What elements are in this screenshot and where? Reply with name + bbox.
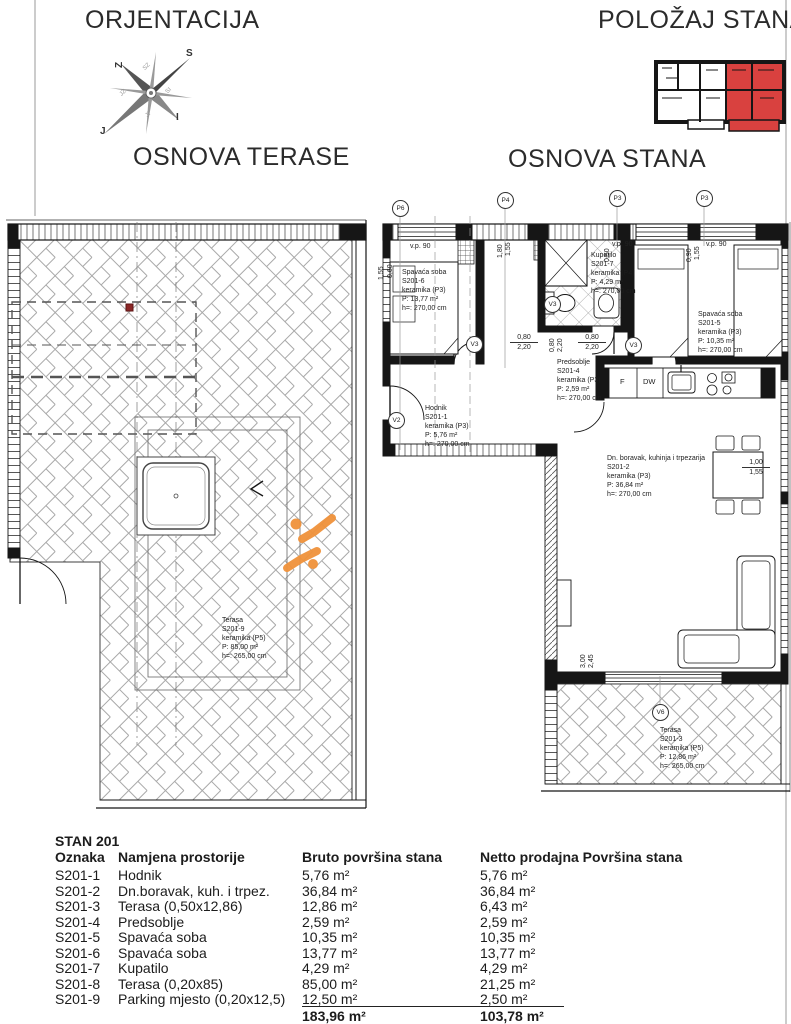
cell-bruto: 2,59 m² [302, 914, 349, 930]
cell-name: Hodnik [118, 867, 162, 883]
window-top-2 [636, 224, 688, 240]
room-id: S201-6 [402, 277, 447, 286]
cell-bruto: 85,00 m² [302, 976, 357, 992]
room-finish: keramika (P5) [222, 634, 267, 643]
room-label-s201-2: Dn. boravak, kuhinja i trpezarija S201-2… [607, 454, 705, 499]
room-finish: keramika (P3) [425, 422, 470, 431]
window-top-1 [398, 224, 456, 240]
position-miniplan [656, 62, 784, 131]
table-row: S201-9 Parking mjesto (0,20x12,5) 12,50 … [55, 991, 775, 1007]
terrace-plan [6, 220, 366, 808]
table-sum-line [302, 1006, 564, 1007]
room-finish: keramika (P3) [698, 328, 743, 337]
cell-netto: 21,25 m² [480, 976, 535, 992]
cell-id: S201-7 [55, 960, 100, 976]
room-finish: keramika (P3) [557, 376, 602, 385]
room-area: P: 13,77 m² [402, 295, 447, 304]
red-marker-square [126, 304, 133, 311]
skylight [137, 457, 215, 535]
room-id: S201-2 [607, 463, 705, 472]
room-height: h=: 270,00 cm [607, 490, 705, 499]
dishwasher-label: DW [643, 377, 656, 386]
cell-netto: 36,84 m² [480, 883, 535, 899]
room-area: P: 2,59 m² [557, 385, 602, 394]
room-finish: keramika (P4) [591, 269, 636, 278]
table-total-row: 183,96 m² 103,78 m² [55, 1008, 775, 1024]
room-height: h=: 265,00 cm [660, 762, 705, 771]
cell-bruto: 12,86 m² [302, 898, 357, 914]
cell-id: S201-3 [55, 898, 100, 914]
floor-plan-sheet: ORJENTACIJA POLOŽAJ STANA OSNOVA TERASE … [0, 0, 791, 1024]
sliding-door [605, 672, 722, 684]
room-area: P: 12,86 m² [660, 753, 705, 762]
window-marker-v6: V6 [652, 704, 669, 721]
orientation-title: ORJENTACIJA [85, 6, 260, 35]
column-header: Oznaka [55, 849, 105, 865]
dimension-fraction: 1,00 1,55 [742, 458, 770, 477]
dimension-label: v.p. 90 [612, 241, 633, 248]
room-id: S201-4 [557, 367, 602, 376]
table-title: STAN 201 [55, 833, 119, 849]
room-height: h=: 270,00 cm [402, 304, 447, 313]
cell-id: S201-4 [55, 914, 100, 930]
cell-bruto: 4,29 m² [302, 960, 349, 976]
window-top-3 [700, 224, 756, 240]
cell-name: Terasa (0,50x12,86) [118, 898, 243, 914]
room-id: S201-7 [591, 260, 636, 269]
cell-id: S201-9 [55, 991, 100, 1007]
room-label-s201-3: Terasa S201-3 keramika (P5) P: 12,86 m² … [660, 726, 705, 771]
column-header: Bruto površina stana [302, 849, 442, 865]
cell-id: S201-2 [55, 883, 100, 899]
dimension-label: 1,55 [505, 242, 512, 256]
room-id: S201-3 [660, 735, 705, 744]
cell-id: S201-5 [55, 929, 100, 945]
cell-id: S201-6 [55, 945, 100, 961]
dimension-label: 1,80 [497, 244, 504, 258]
cell-netto: 6,43 m² [480, 898, 527, 914]
room-area: P: 10,35 m² [698, 337, 743, 346]
dimension-label: 2,45 [588, 654, 595, 668]
axis-marker-p4: P4 [497, 192, 514, 209]
cell-netto: 2,59 m² [480, 914, 527, 930]
table-header-row: Oznaka Namjena prostorije Bruto površina… [55, 849, 775, 865]
room-id: S201-5 [698, 319, 743, 328]
cell-name: Dn.boravak, kuh. i trpez. [118, 883, 270, 899]
dimension-fraction: 0,80 2,20 [510, 333, 538, 352]
room-label-s201-5: Spavaća soba S201-5 keramika (P3) P: 10,… [698, 310, 743, 355]
room-name: Terasa [660, 726, 705, 735]
sofa [678, 556, 775, 668]
room-id: S201-1 [425, 413, 470, 422]
room-name: Spavaća soba [402, 268, 447, 277]
room-id: S201-9 [222, 625, 267, 634]
room-height: h=: 270,00 cm [425, 440, 470, 449]
compass-east-label: I [176, 112, 179, 123]
cell-bruto: 13,77 m² [302, 945, 357, 961]
cell-bruto: 36,84 m² [302, 883, 357, 899]
room-height: h=: 270,00 cm [557, 394, 602, 403]
terrace-plan-title: OSNOVA TERASE [133, 143, 350, 172]
cell-netto: 13,77 m² [480, 945, 535, 961]
door-marker-v3-c: V3 [625, 337, 642, 354]
dimension-label: 0,50 [604, 248, 611, 262]
table-row: S201-5 Spavaća soba 10,35 m² 10,35 m² [55, 929, 775, 945]
room-area: P: 5,76 m² [425, 431, 470, 440]
cell-bruto: 10,35 m² [302, 929, 357, 945]
room-name: Kupatilo [591, 251, 636, 260]
room-finish: keramika (P5) [660, 744, 705, 753]
dimension-label: 1,55 [378, 266, 385, 280]
dimension-label: 2,20 [557, 338, 564, 352]
apartment-plan-title: OSNOVA STANA [508, 145, 706, 174]
table-row: S201-6 Spavaća soba 13,77 m² 13,77 m² [55, 945, 775, 961]
table-row: S201-2 Dn.boravak, kuh. i trpez. 36,84 m… [55, 883, 775, 899]
cell-bruto: 5,76 m² [302, 867, 349, 883]
cell-id: S201-8 [55, 976, 100, 992]
room-height: h=: 265,00 cm [222, 652, 267, 661]
table-title-row: STAN 201 [55, 833, 775, 849]
room-label-s201-6: Spavaća soba S201-6 keramika (P3) P: 13,… [402, 268, 447, 313]
room-height: h=: 270,00 cm [698, 346, 743, 355]
cell-name: Terasa (0,20x85) [118, 976, 223, 992]
compass-south-label: J [100, 126, 106, 137]
room-area: P: 85,00 m² [222, 643, 267, 652]
dimension-label: v.p. 90 [410, 243, 431, 250]
shower [545, 240, 587, 286]
axis-marker-p3-a: P3 [609, 190, 626, 207]
cell-netto: 10,35 m² [480, 929, 535, 945]
compass-west-label: Z [114, 62, 125, 68]
room-label-terrace-main: Terasa S201-9 keramika (P5) P: 85,00 m² … [222, 616, 267, 661]
room-name: Spavaća soba [698, 310, 743, 319]
cell-netto: 5,76 m² [480, 867, 527, 883]
dimension-label: 2,20 [510, 343, 538, 352]
dimension-label: 0,80 [578, 333, 606, 343]
table-row: S201-4 Predsoblje 2,59 m² 2,59 m² [55, 914, 775, 930]
room-label-s201-1: Hodnik S201-1 keramika (P3) P: 5,76 m² h… [425, 404, 470, 449]
room-area: P: 36,84 m² [607, 481, 705, 490]
room-height: h=: 270,00 cm [591, 287, 636, 296]
cell-name: Parking mjesto (0,20x12,5) [118, 991, 285, 1007]
position-title: POLOŽAJ STANA [598, 6, 791, 35]
room-area: P: 4,29 m² [591, 278, 636, 287]
dimension-label: v.p. 90 [706, 241, 727, 248]
dimension-label: 1,55 [742, 468, 770, 477]
cell-netto: 2,50 m² [480, 991, 527, 1007]
dimension-label: 0,60 [387, 264, 394, 278]
room-label-s201-7: Kupatilo S201-7 keramika (P4) P: 4,29 m²… [591, 251, 636, 296]
cell-name: Predsoblje [118, 914, 184, 930]
table-row: S201-1 Hodnik 5,76 m² 5,76 m² [55, 867, 775, 883]
cell-bruto: 12,50 m² [302, 991, 357, 1007]
tv-cabinet [557, 580, 571, 626]
table-row: S201-8 Terasa (0,20x85) 85,00 m² 21,25 m… [55, 976, 775, 992]
cell-name: Kupatilo [118, 960, 169, 976]
room-name: Hodnik [425, 404, 470, 413]
room-name: Predsoblje [557, 358, 602, 367]
bed-single-left [634, 245, 688, 357]
column-header: Netto prodajna Površina stana [480, 849, 682, 865]
table-row: S201-3 Terasa (0,50x12,86) 12,86 m² 6,43… [55, 898, 775, 914]
room-name: Dn. boravak, kuhinja i trpezarija [607, 454, 705, 463]
cell-id: S201-1 [55, 867, 100, 883]
dimension-label: 0,80 [510, 333, 538, 343]
dimension-label: 0,90 [686, 248, 693, 262]
door-marker-v3-a: V3 [466, 336, 483, 353]
dimension-label: 2,20 [578, 343, 606, 352]
door-marker-v2: V2 [388, 412, 405, 429]
room-finish: keramika (P3) [402, 286, 447, 295]
axis-marker-p6: P6 [392, 200, 409, 217]
table-row: S201-7 Kupatilo 4,29 m² 4,29 m² [55, 960, 775, 976]
room-label-s201-4: Predsoblje S201-4 keramika (P3) P: 2,59 … [557, 358, 602, 403]
axis-marker-p3-b: P3 [696, 190, 713, 207]
dimension-fraction: 0,80 2,20 [578, 333, 606, 352]
total-netto: 103,78 m² [480, 1008, 544, 1024]
cell-name: Spavaća soba [118, 929, 207, 945]
room-finish: keramika (P3) [607, 472, 705, 481]
total-bruto: 183,96 m² [302, 1008, 366, 1024]
cell-name: Spavaća soba [118, 945, 207, 961]
cell-netto: 4,29 m² [480, 960, 527, 976]
compass-north-label: S [186, 48, 193, 59]
door-marker-v3-b: V3 [544, 296, 561, 313]
dimension-label: 3,00 [580, 654, 587, 668]
dimension-label: 1,00 [742, 458, 770, 468]
dimension-label: 0,80 [549, 338, 556, 352]
fridge-label: F [620, 377, 625, 386]
dimension-label: 1,55 [694, 246, 701, 260]
column-header: Namjena prostorije [118, 849, 245, 865]
room-name: Terasa [222, 616, 267, 625]
